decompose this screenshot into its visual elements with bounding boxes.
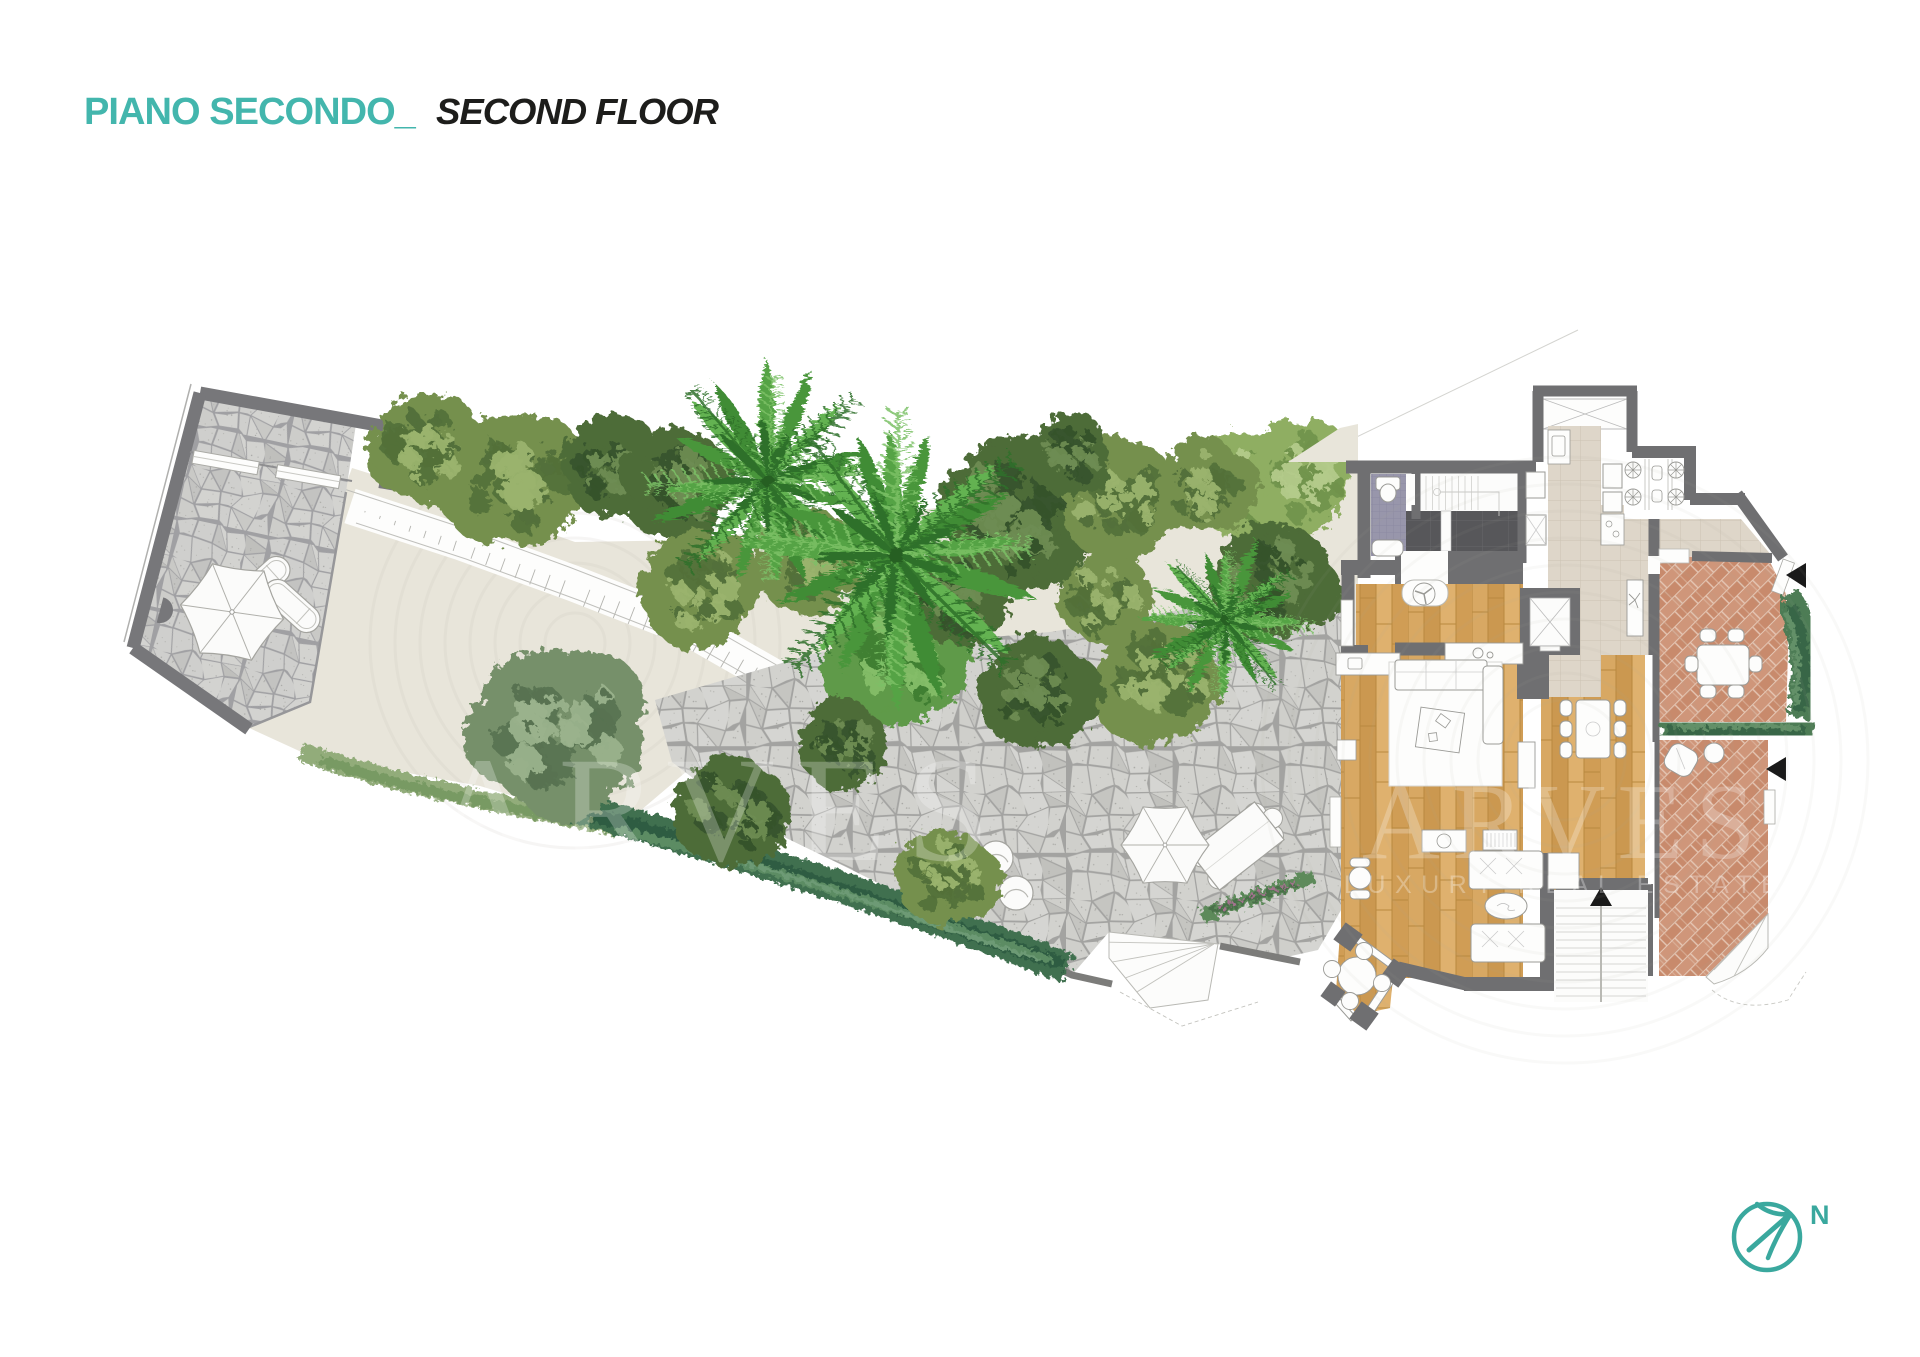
svg-text:N: N: [1810, 1200, 1830, 1230]
svg-text:ARVES: ARVES: [1362, 763, 1767, 882]
svg-text:ARVES: ARVES: [430, 727, 1010, 893]
svg-text:LUXURY REAL ESTATE: LUXURY REAL ESTATE: [1344, 871, 1787, 899]
svg-text:SECOND FLOOR: SECOND FLOOR: [436, 91, 720, 132]
svg-text:PIANO SECONDO_: PIANO SECONDO_: [84, 91, 417, 133]
